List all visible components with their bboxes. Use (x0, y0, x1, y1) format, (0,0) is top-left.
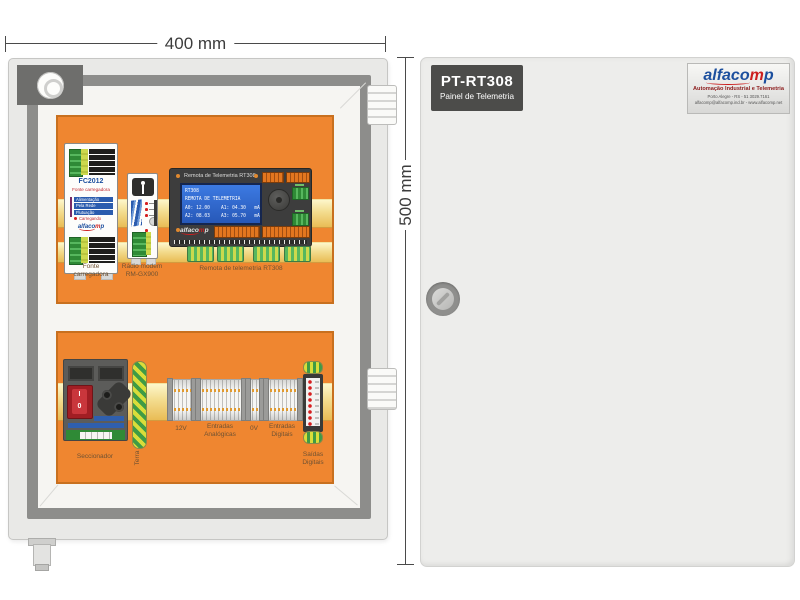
fc2012-model-label: FC2012 (65, 178, 117, 185)
din-terminal-block (253, 246, 280, 262)
terminal-group-digital-inputs (265, 379, 301, 421)
screw-icon (176, 174, 180, 178)
green-connector (292, 187, 309, 200)
dimension-line (405, 57, 406, 565)
fc2012-charger-module: FC2012 Fonte carregadora Alimentação Pel… (64, 143, 118, 274)
height-label: 500 mm (396, 160, 416, 230)
led-column (306, 378, 320, 426)
disconnect-switch: I 0 (63, 359, 128, 441)
lcd-line-3: A0: 12.00 A1: 04.30 mA (185, 204, 254, 212)
open-cabinet-view: FC2012 Fonte carregadora Alimentação Pel… (8, 58, 388, 540)
panel-title: PT-RT308 (431, 73, 523, 90)
antenna-icon (132, 178, 154, 196)
rocker-face: I 0 (72, 389, 87, 414)
orange-terminal-strip (214, 226, 260, 238)
brand-address: Porto Alegre - RS - 51 3029.7161 (688, 94, 789, 99)
fc2012-brand-logo: alfacomp (65, 224, 117, 230)
green-connector (292, 213, 309, 226)
rt308-telemetry-unit: Remota de Telemetria RT308 RT308 REMOTA … (169, 168, 312, 247)
led-strip (70, 197, 72, 217)
lcd-line-2: REMOTA DE TELEMETRIA (185, 195, 254, 203)
radio-modem-module (127, 173, 158, 259)
label-rows (89, 237, 115, 263)
terminal-block (81, 237, 88, 263)
height-dimension: 500 mm (396, 57, 416, 565)
caption-rt308: Remota de telemetria RT308 (161, 265, 321, 273)
dimension-tick (397, 57, 414, 58)
indicator-pela-rede: Pela Rede (74, 203, 113, 208)
terminal-group-analog-inputs (197, 379, 245, 421)
caption-seccionador: Seccionador (65, 453, 125, 461)
rt308-header-label: Remota de Telemetria RT308 (184, 173, 256, 179)
alfacomp-logo: alfacomp (180, 227, 209, 234)
brand-tagline: Automação Industrial e Telemetria (688, 86, 789, 92)
connector-block (98, 366, 124, 381)
width-dimension: 400 mm (5, 34, 386, 54)
rt308-brand-logo: alfacomp (180, 227, 209, 234)
switch-on-label: I (72, 389, 87, 401)
power-rocker-switch: I 0 (67, 385, 93, 419)
din-terminal-block (187, 246, 214, 262)
terminal-board (66, 430, 125, 440)
telemetry-panel-diagram: 400 mm 500 mm FC20 (0, 0, 800, 600)
screw-icon (254, 174, 258, 178)
socket-icon (114, 402, 124, 412)
cable-gland-tip (35, 564, 49, 571)
dimension-tick (5, 36, 6, 52)
indicator-flutuacao: Flutuação (74, 210, 113, 215)
module-graphic (131, 199, 142, 227)
indicator-alimentacao: Alimentação (74, 197, 113, 202)
red-led-icon (74, 217, 77, 220)
buzzer-icon (268, 189, 290, 211)
terminal-block (132, 232, 147, 257)
fc2012-type-label: Fonte carregadora (65, 187, 117, 192)
switch-off-label: 0 (72, 401, 87, 413)
lcd-display: RT308 REMOTA DE TELEMETRIA A0: 12.00 A1:… (180, 183, 262, 225)
socket-icon (102, 390, 112, 400)
alfacomp-logo: alfacomp (688, 67, 789, 84)
hinge-pin-icon (37, 72, 64, 99)
door-nameplate: PT-RT308 Painel de Telemetria (431, 65, 523, 111)
caption-digital-outputs: SaídasDigitais (283, 451, 343, 467)
terminal-block (81, 149, 88, 175)
dimension-tick (397, 564, 414, 565)
alfacomp-logo: alfacomp (78, 224, 104, 230)
label-rows (89, 149, 115, 175)
terminal-group-12v (169, 379, 195, 421)
width-label: 400 mm (157, 34, 234, 54)
orange-terminal-strip (262, 226, 310, 238)
side-strip (154, 200, 157, 226)
brand-plate: alfacomp Automação Industrial e Telemetr… (687, 63, 790, 114)
din-terminal-block (217, 246, 244, 262)
orange-terminal (262, 172, 284, 183)
terminal-group-0v (247, 379, 263, 421)
socket-plate (95, 380, 133, 418)
caption-terra: Terra (134, 438, 144, 478)
lcd-line-4: A2: 08.03 A3: 05.70 mA (185, 212, 254, 220)
red-led-icon (145, 214, 148, 217)
terminal-block (303, 361, 323, 374)
panel-subtitle: Painel de Telemetria (431, 92, 523, 101)
cable-gland-body (33, 544, 51, 566)
digital-output-module (303, 374, 323, 432)
din-terminal-block (284, 246, 311, 262)
hinge-right-top (367, 85, 397, 125)
red-led-icon (145, 202, 148, 205)
red-led-icon (145, 208, 148, 211)
door-lock (426, 282, 460, 316)
brand-contact: alfacomp@alfacomp.ind.br - www.alfacomp.… (688, 100, 789, 105)
hinge-right-bottom (367, 368, 397, 410)
ground-busbar (132, 361, 147, 449)
dimension-tick (385, 36, 386, 52)
orange-terminal (286, 172, 310, 183)
indicator-carregando: Carregando (74, 216, 113, 222)
closed-door-view: PT-RT308 Painel de Telemetria alfacomp A… (420, 57, 795, 567)
terminal-block (146, 232, 151, 255)
bottom-terminal-row (174, 240, 307, 244)
door-hinge-block (17, 65, 83, 105)
label-strip (94, 416, 124, 421)
lcd-line-1: RT308 (185, 187, 254, 195)
connector-block (68, 366, 94, 381)
label-strip (68, 423, 124, 428)
terminal-block (303, 431, 323, 444)
